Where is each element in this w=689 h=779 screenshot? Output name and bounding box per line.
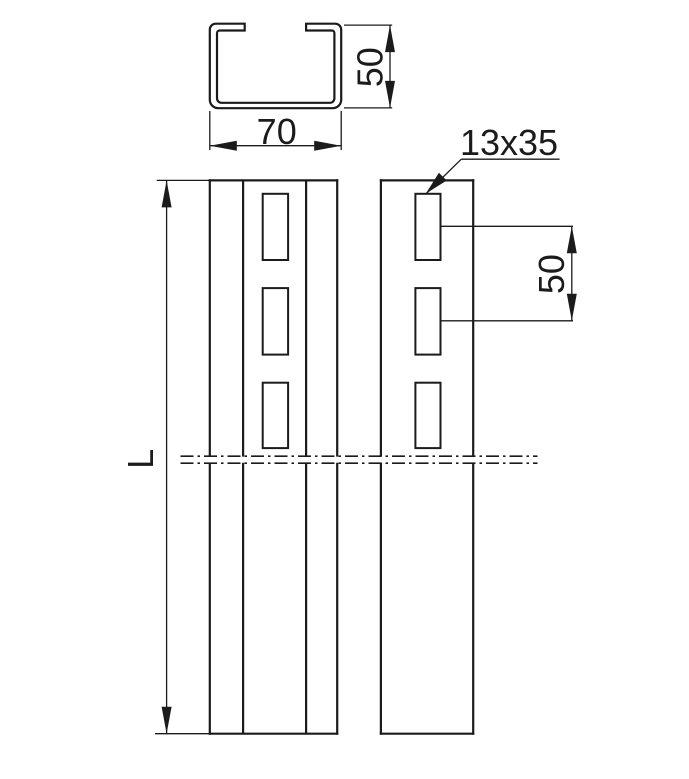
svg-text:L: L: [120, 449, 161, 469]
svg-text:70: 70: [257, 111, 297, 152]
svg-text:13x35: 13x35: [460, 122, 558, 163]
svg-text:50: 50: [531, 254, 572, 294]
svg-text:50: 50: [350, 47, 391, 87]
